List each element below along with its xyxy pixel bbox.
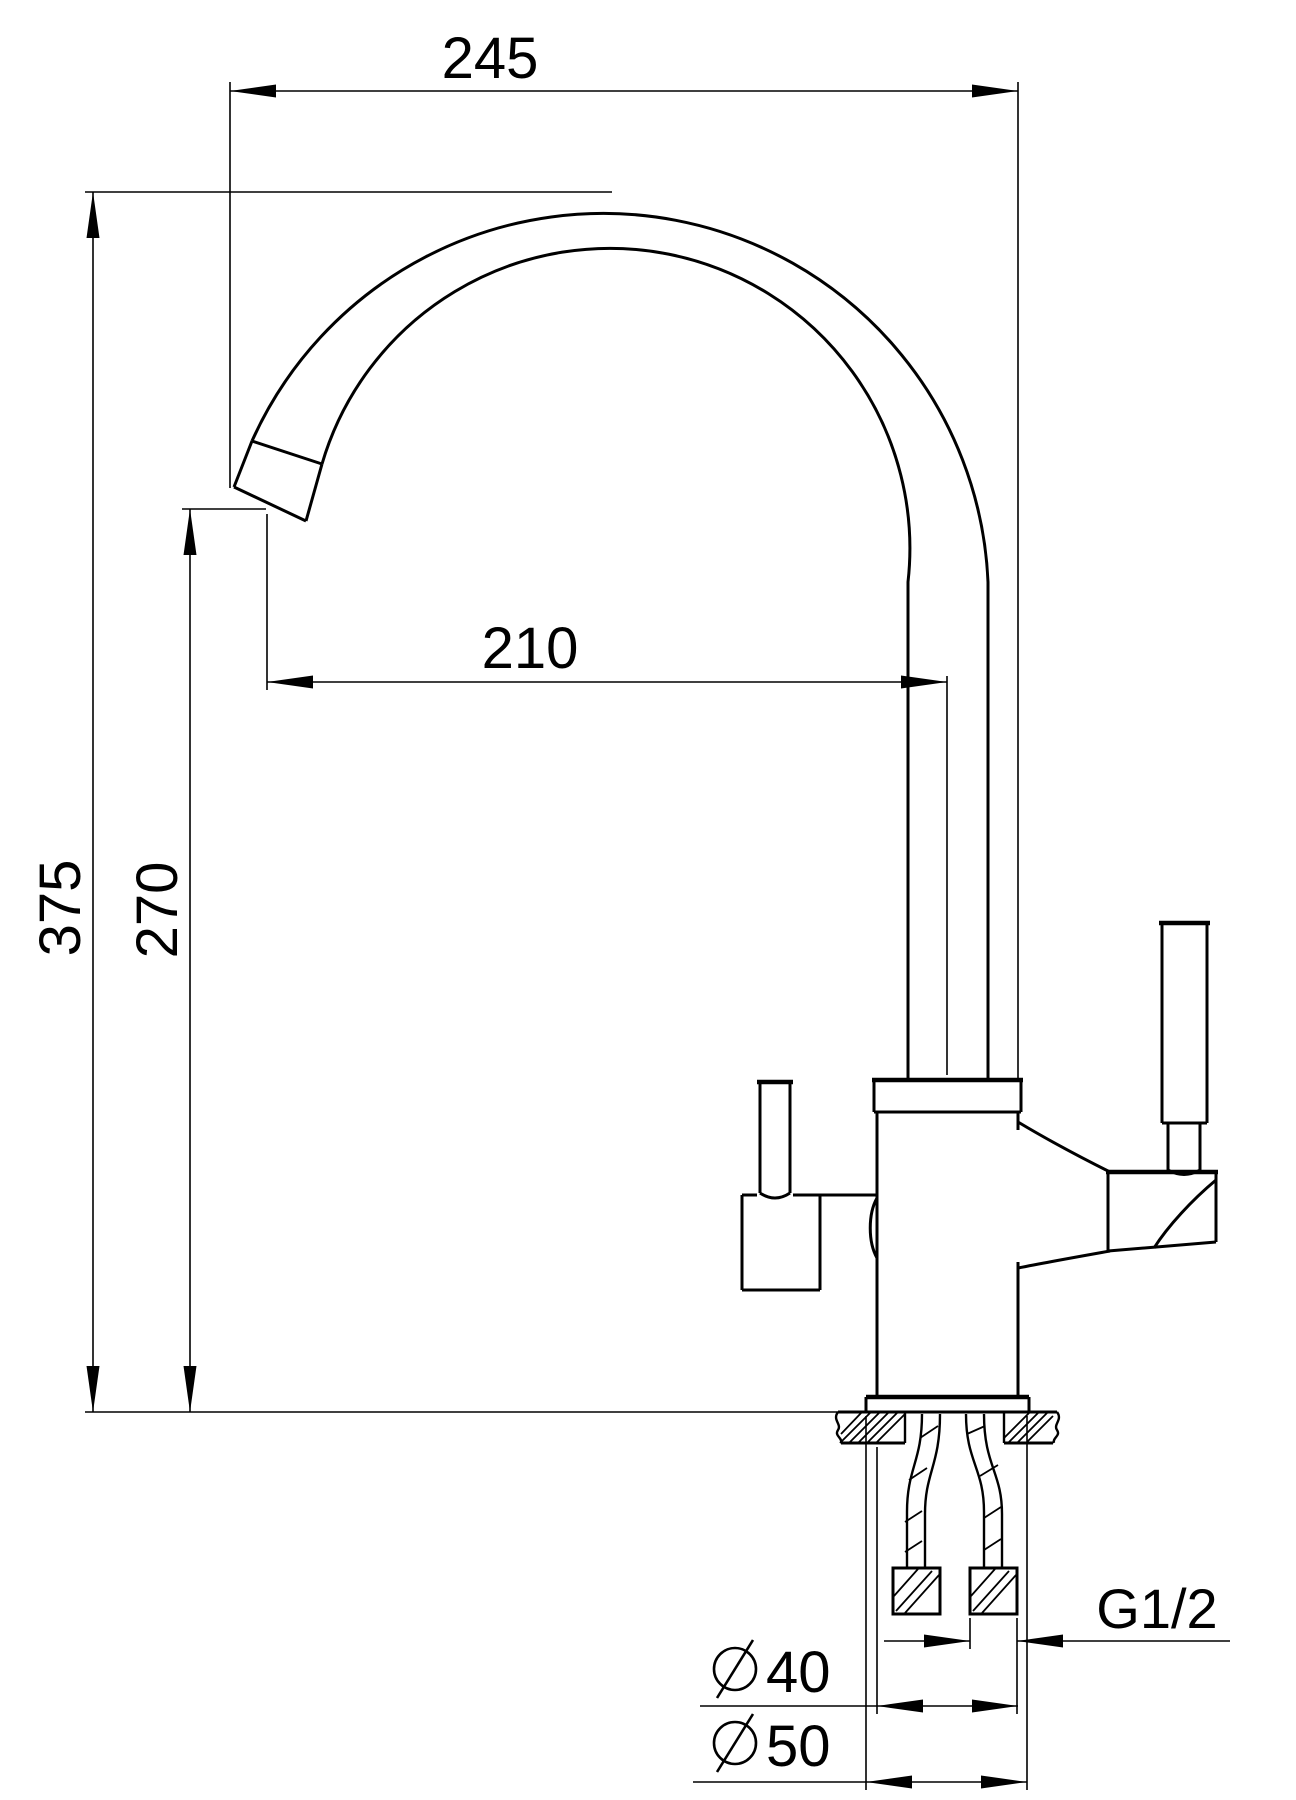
dimension-overall-height: 375	[28, 192, 612, 1412]
valve-cone-top	[1018, 1122, 1110, 1172]
spout-inner-curve	[322, 248, 910, 1080]
dim-thread-label: G1/2	[1096, 1577, 1217, 1640]
aerator-joint-line	[252, 441, 322, 464]
aerator-inner-side	[306, 464, 322, 521]
deck-break-left	[836, 1412, 841, 1443]
dim-210-label: 210	[482, 616, 579, 681]
hose-connector-left	[893, 1568, 940, 1614]
valve-cone-bottom	[1018, 1251, 1110, 1268]
faucet-technical-drawing: 245 210 375 270 G1/2	[0, 0, 1296, 1800]
aerator-outlet-face	[234, 487, 306, 521]
right-handle	[1018, 923, 1218, 1268]
dimension-spout-height: 270	[125, 509, 266, 1412]
diameter-symbol-icon	[714, 1640, 756, 1698]
dim-245-label: 245	[442, 26, 539, 91]
faucet-body	[870, 1112, 1018, 1395]
dim-270-label: 270	[125, 862, 190, 959]
faucet-outline	[234, 213, 1218, 1614]
dimension-overall-reach: 245	[230, 26, 1018, 1078]
deck-hatching	[840, 1412, 1053, 1443]
spout-gooseneck	[234, 213, 988, 1080]
left-handle	[742, 1082, 877, 1290]
base-plate	[866, 1397, 1029, 1412]
spout-outer-curve	[252, 213, 988, 1080]
dim-50-label: 50	[766, 1714, 831, 1779]
handle-cap-edge	[1154, 1180, 1216, 1248]
supply-hoses	[893, 1414, 1017, 1614]
diameter-symbol-icon	[714, 1714, 756, 1772]
deck-break-right	[1054, 1412, 1059, 1443]
dimension-spout-reach: 210	[267, 514, 947, 1075]
dim-375-label: 375	[28, 860, 93, 957]
aerator-outer-side	[234, 441, 252, 487]
hose-connector-right	[970, 1568, 1017, 1614]
drawing-sheet: 245 210 375 270 G1/2	[0, 0, 1296, 1800]
dimension-thread: G1/2	[884, 1577, 1230, 1714]
spout-collar	[872, 1080, 1023, 1112]
dim-40-label: 40	[766, 1640, 831, 1705]
